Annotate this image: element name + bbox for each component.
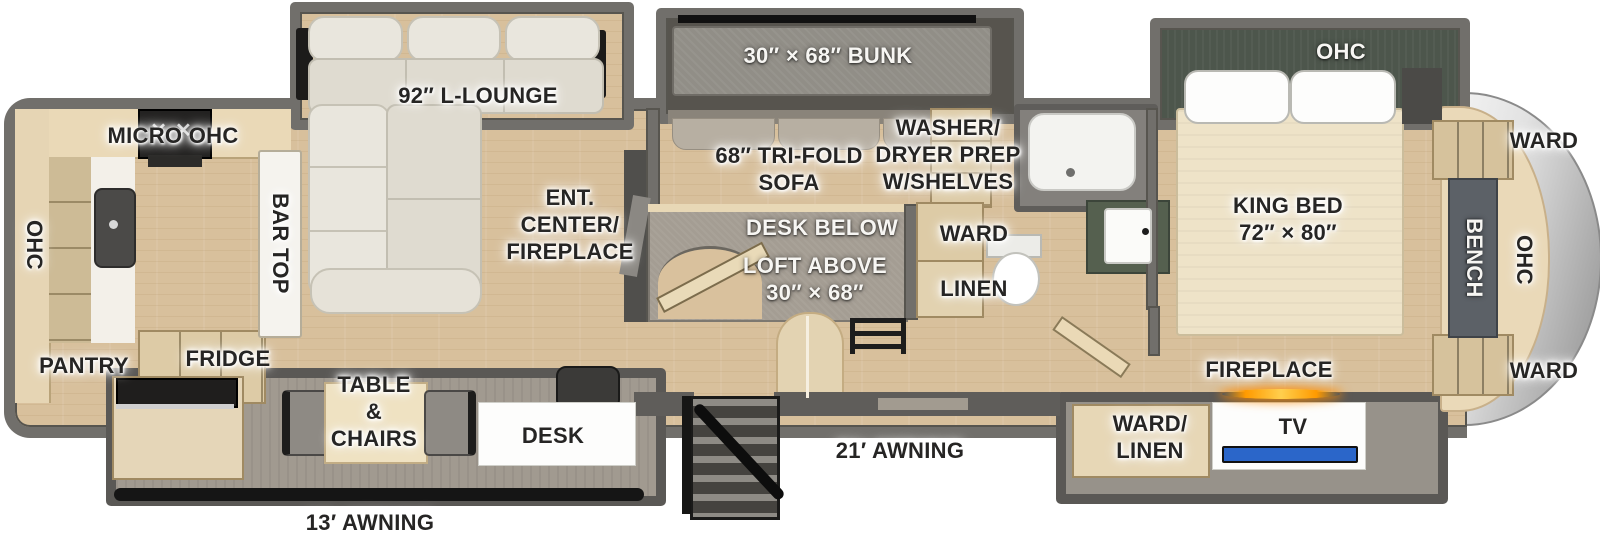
label-ohc-front: OHC [1504,223,1538,297]
walkway-divider [806,316,809,398]
label-ent-center: ENT. CENTER/ FIREPLACE [500,184,640,265]
label-awning-13: 13′ AWNING [280,509,460,536]
label-l-lounge: 92″ L-LOUNGE [378,82,578,109]
entry-step-rail-left [682,396,691,514]
kitchen-faucet [109,220,118,229]
l-lounge-end-cushion [310,268,482,314]
label-bar-top: BAR TOP [260,168,294,318]
kitchen-cabinet-doors [49,157,93,343]
label-bench: BENCH [1454,216,1488,300]
label-desk-below: DESK BELOW [737,214,907,241]
shower-drain [1066,168,1075,177]
loft-ladder [850,318,906,354]
label-tv: TV [1253,413,1333,440]
label-fireplace: FIREPLACE [1196,356,1342,383]
label-desk: DESK [493,422,613,449]
bed-pillow-right [1290,70,1396,124]
label-ward-front-bottom: WARD [1492,357,1596,384]
label-linen-bath: LINEN [928,275,1020,302]
label-tri-fold-sofa: 68″ TRI-FOLD SOFA [694,142,884,196]
bath-sink [1104,208,1152,264]
bedroom-nightstand [1402,68,1442,124]
label-loft-above: LOFT ABOVE 30″ × 68″ [720,252,910,306]
bunk-window-strip [678,15,976,23]
label-washer-dryer: WASHER/ DRYER PREP W/SHELVES [858,114,1038,195]
rear-awning-bar [114,488,644,501]
fireplace-glow [1222,389,1340,399]
tv-screen [1222,446,1358,463]
sofa-back-cushion [308,16,403,62]
bedroom-door-jamb [1148,306,1160,356]
range-hood [148,155,202,167]
sofa-back-cushion [407,16,502,62]
label-bunk: 30″ × 68″ BUNK [688,42,968,69]
sofa-back-cushion [505,16,600,62]
label-pantry: PANTRY [24,352,144,379]
label-ohc-rear: OHC [14,206,48,284]
floorplan-canvas: ✕✕ [0,0,1600,538]
label-ward-bath: WARD [928,220,1020,247]
label-micro-ohc: MICRO OHC [73,122,273,149]
label-ward-linen: WARD/ LINEN [1090,410,1210,464]
shower-pan [1028,113,1136,191]
fridge-trim [116,404,234,409]
label-table-chairs: TABLE & CHAIRS [300,371,448,452]
bottom-wall-window [878,398,968,410]
bath-faucet [1142,228,1149,235]
label-awning-21: 21′ AWNING [820,437,980,464]
label-ward-front-top: WARD [1492,127,1596,154]
entry-walkway [776,312,844,400]
l-lounge-sofa-back-row [308,16,600,62]
label-fridge: FRIDGE [168,345,288,372]
label-king-bed: KING BED 72″ × 80″ [1208,192,1368,246]
loft-top-trim [648,204,904,212]
label-ohc-bedroom-slide: OHC [1286,38,1396,65]
bed-pillow-left [1184,70,1290,124]
